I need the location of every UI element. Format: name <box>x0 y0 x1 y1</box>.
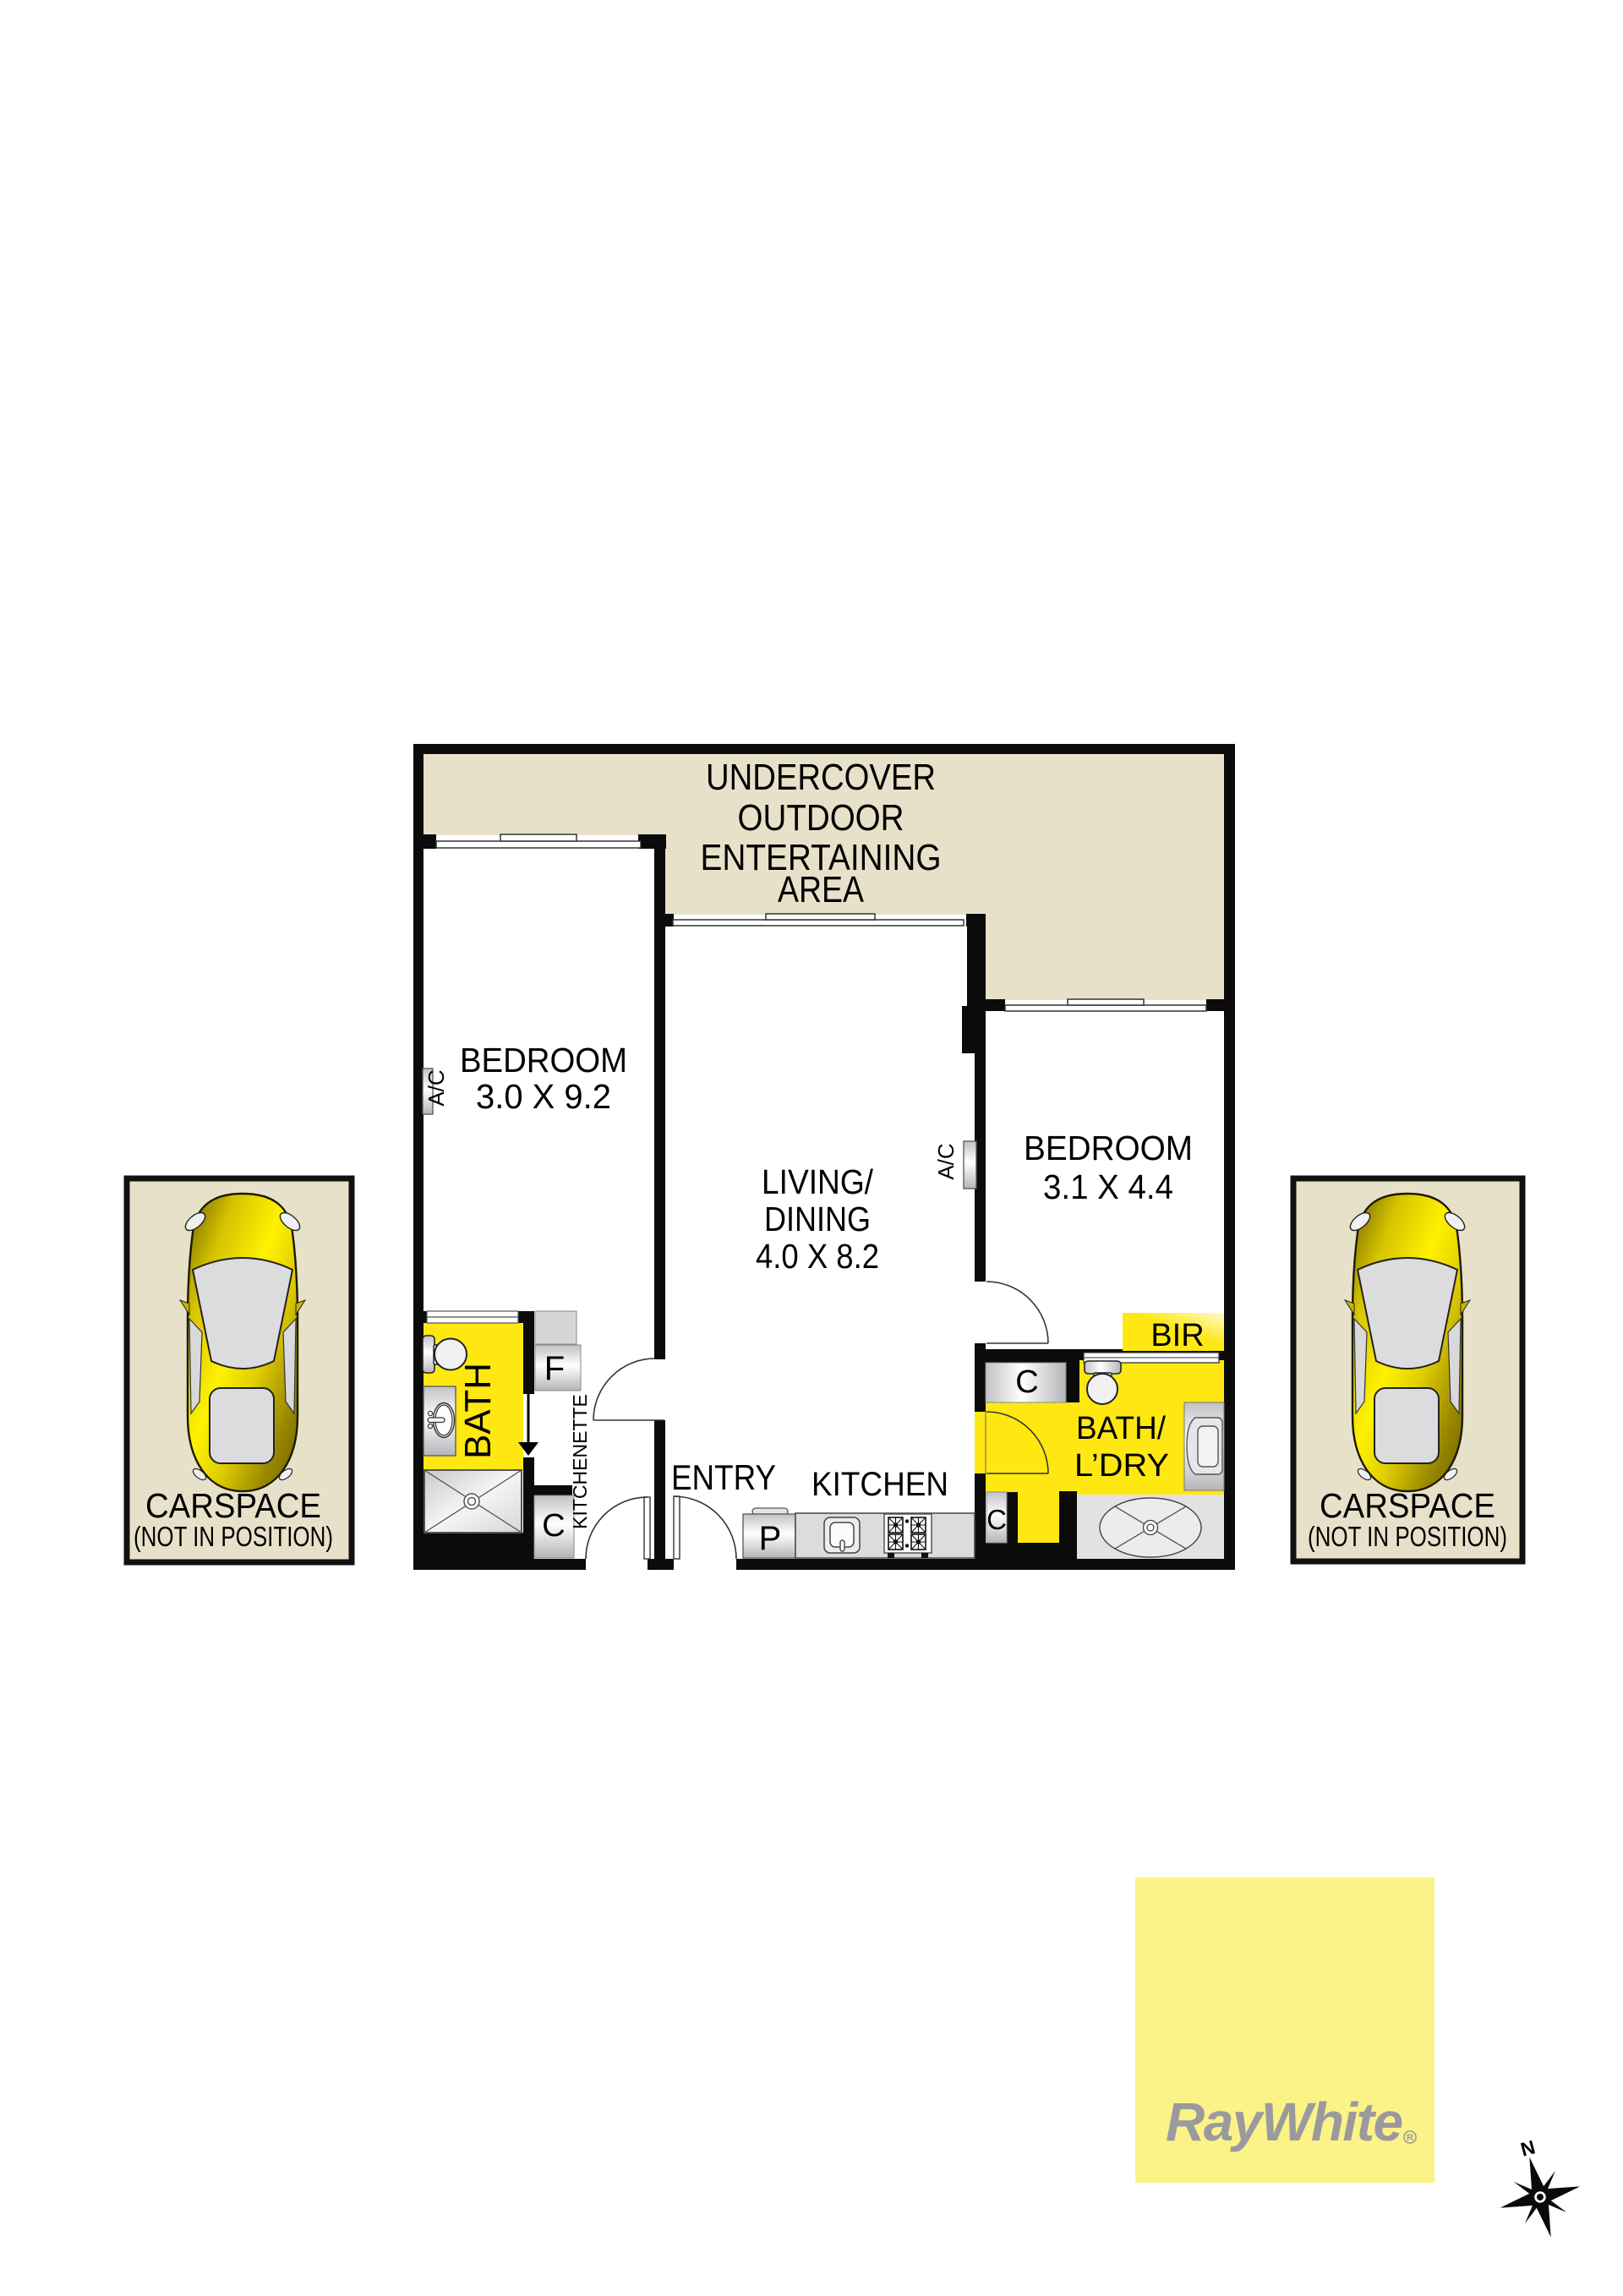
svg-text:R: R <box>1407 2133 1413 2143</box>
svg-text:A/C: A/C <box>424 1069 449 1106</box>
svg-text:C: C <box>986 1504 1007 1535</box>
svg-text:3.0 X 9.2: 3.0 X 9.2 <box>476 1077 611 1116</box>
svg-text:C: C <box>542 1508 565 1544</box>
svg-text:P: P <box>759 1520 782 1557</box>
svg-text:KITCHENETTE: KITCHENETTE <box>569 1394 591 1529</box>
svg-text:KITCHEN: KITCHEN <box>811 1466 948 1503</box>
svg-text:OUTDOOR: OUTDOOR <box>738 797 904 839</box>
svg-text:LIVING/: LIVING/ <box>762 1162 874 1201</box>
svg-text:AREA: AREA <box>778 869 865 910</box>
svg-text:C: C <box>1015 1364 1038 1400</box>
svg-text:L’DRY: L’DRY <box>1074 1448 1169 1484</box>
svg-text:UNDERCOVER: UNDERCOVER <box>706 757 936 798</box>
svg-text:3.1 X 4.4: 3.1 X 4.4 <box>1043 1167 1173 1206</box>
svg-text:RayWhite: RayWhite <box>1166 2091 1402 2152</box>
svg-text:BEDROOM: BEDROOM <box>1024 1129 1193 1167</box>
svg-text:CARSPACE: CARSPACE <box>145 1486 321 1525</box>
svg-text:(NOT IN POSITION): (NOT IN POSITION) <box>134 1521 333 1552</box>
svg-text:BATH/: BATH/ <box>1076 1411 1166 1446</box>
svg-text:DINING: DINING <box>764 1200 871 1238</box>
svg-text:A/C: A/C <box>933 1143 959 1179</box>
svg-text:BIR: BIR <box>1150 1318 1204 1353</box>
svg-text:ENTRY: ENTRY <box>671 1457 776 1497</box>
svg-text:BATH: BATH <box>457 1363 499 1459</box>
svg-text:F: F <box>544 1350 565 1387</box>
svg-text:4.0 X 8.2: 4.0 X 8.2 <box>756 1237 879 1276</box>
svg-text:(NOT IN POSITION): (NOT IN POSITION) <box>1308 1521 1507 1552</box>
svg-text:BEDROOM: BEDROOM <box>460 1041 627 1080</box>
